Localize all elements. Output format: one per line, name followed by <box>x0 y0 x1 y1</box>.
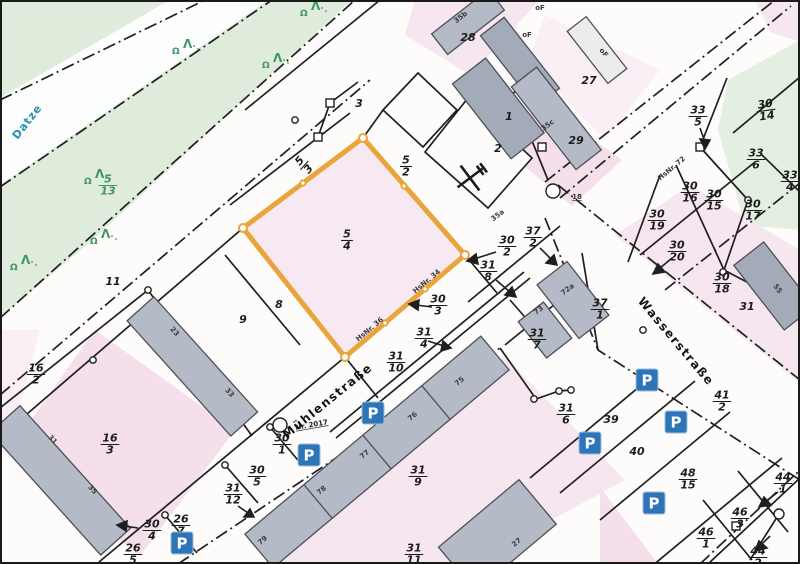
svg-text:Λ: Λ <box>183 37 193 51</box>
svg-text:6: 6 <box>562 414 570 427</box>
svg-text:12: 12 <box>225 494 241 507</box>
svg-text:3: 3 <box>736 518 744 531</box>
svg-text:7: 7 <box>533 339 541 352</box>
svg-text:20: 20 <box>669 251 685 264</box>
parcel-label: 52 <box>400 154 412 179</box>
svg-text:P: P <box>304 447 315 465</box>
parcel-label: 28 <box>460 31 476 44</box>
svg-text:18: 18 <box>714 283 730 296</box>
svg-text:2: 2 <box>503 246 511 259</box>
parcel-label: 3019 <box>648 208 667 233</box>
parcel-label: 29 <box>568 134 584 147</box>
svg-text:Λ: Λ <box>21 253 31 267</box>
svg-text:17: 17 <box>745 210 761 223</box>
svg-text:4: 4 <box>785 181 794 194</box>
parcel-label: 3016 <box>681 180 700 205</box>
parcel-label: 27 <box>581 74 597 87</box>
parcel-label: 265 <box>124 542 143 564</box>
svg-text:P: P <box>585 435 596 453</box>
svg-text:8: 8 <box>484 271 492 284</box>
svg-text:19: 19 <box>649 220 665 233</box>
parcel-label: 3015 <box>705 188 724 213</box>
svg-text:P: P <box>177 535 188 553</box>
parcel-label: 302 <box>498 234 517 259</box>
parcel-label: 314 <box>415 326 434 351</box>
parcel-label: 372 <box>524 225 543 250</box>
svg-text:5: 5 <box>253 476 261 489</box>
svg-text:1: 1 <box>278 444 286 457</box>
svg-text:Ω: Ω <box>84 177 92 187</box>
svg-text:2: 2 <box>32 374 40 387</box>
svg-text:Ω: Ω <box>10 263 18 273</box>
parcel-label: 3110 <box>387 350 406 375</box>
parcel-label: 305 <box>248 464 267 489</box>
cadastral-map-page: ΩΛΩΛΩΛΩΛΩΛΩΛ 545352335301433633430163015… <box>0 0 800 564</box>
parcel-label: 2 <box>494 142 502 155</box>
parcel-label: 442 <box>749 545 768 564</box>
svg-text:P: P <box>368 405 379 423</box>
svg-text:1: 1 <box>702 538 710 551</box>
svg-text:15: 15 <box>680 479 696 492</box>
svg-text:2: 2 <box>529 237 537 250</box>
parcel-label: 39 <box>603 413 619 426</box>
svg-text:9: 9 <box>414 476 422 489</box>
parking-icon: P <box>298 444 320 466</box>
svg-text:5: 5 <box>694 116 702 129</box>
parcel-label: 3020 <box>668 239 687 264</box>
house-number-label: oF <box>522 31 532 39</box>
svg-text:Ω: Ω <box>90 237 98 247</box>
svg-text:1: 1 <box>596 309 604 322</box>
svg-text:4: 4 <box>342 240 351 253</box>
parcel-label: 3111 <box>405 542 424 564</box>
svg-text:Λ: Λ <box>273 51 283 65</box>
svg-text:3: 3 <box>434 305 442 318</box>
svg-text:16: 16 <box>682 192 698 205</box>
parking-icon: P <box>665 411 687 433</box>
parcel-label: 441 <box>774 471 793 496</box>
svg-text:P: P <box>671 414 682 432</box>
svg-text:4: 4 <box>419 338 428 351</box>
house-number-label: oF <box>535 4 545 12</box>
svg-text:14: 14 <box>758 108 775 123</box>
svg-text:Ω: Ω <box>172 47 180 57</box>
parcel-label: 31 <box>739 300 754 313</box>
svg-text:2: 2 <box>402 166 410 179</box>
cadastral-map[interactable]: ΩΛΩΛΩΛΩΛΩΛΩΛ 545352335301433633430163015… <box>0 0 800 564</box>
svg-text:P: P <box>649 495 660 513</box>
parcel-label: 461 <box>697 526 716 551</box>
highlighted-parcel[interactable] <box>239 134 469 361</box>
parcel-label: 11 <box>105 275 120 288</box>
parking-icon: P <box>643 492 665 514</box>
parcel-label: 3112 <box>224 482 243 507</box>
svg-text:2: 2 <box>718 401 726 414</box>
parcel-label: 40 <box>628 445 645 458</box>
parcel-label: 9 <box>239 313 247 326</box>
parking-icon: P <box>579 432 601 454</box>
parcel-label: 335 <box>689 104 708 129</box>
parking-icon: P <box>362 402 384 424</box>
parking-icon: P <box>636 369 658 391</box>
parcel-label: 3 <box>355 97 363 110</box>
svg-text:Λ: Λ <box>101 227 111 241</box>
svg-text:13: 13 <box>100 185 116 198</box>
svg-text:6: 6 <box>752 159 760 172</box>
house-number-label: 18 <box>572 193 582 201</box>
svg-text:15: 15 <box>706 200 722 213</box>
svg-text:1: 1 <box>779 483 787 496</box>
parcel-label: 4815 <box>679 467 698 492</box>
parcel-label: 303 <box>429 293 448 318</box>
svg-text:Ω: Ω <box>300 9 308 19</box>
parcel-label: 1 <box>505 110 513 123</box>
parking-icon: P <box>171 532 193 554</box>
svg-text:3: 3 <box>106 444 114 457</box>
parcel-label: 3017 <box>744 198 763 223</box>
svg-text:P: P <box>642 372 653 390</box>
parcel-label: 3018 <box>713 271 732 296</box>
parcel-label: 412 <box>713 389 732 414</box>
svg-text:10: 10 <box>388 362 404 375</box>
house-number-label: 35a <box>490 208 507 223</box>
parcel-label: 162 <box>27 362 46 387</box>
svg-text:Ω: Ω <box>262 61 270 71</box>
svg-text:4: 4 <box>147 530 156 543</box>
parcel-label: 8 <box>275 298 283 311</box>
